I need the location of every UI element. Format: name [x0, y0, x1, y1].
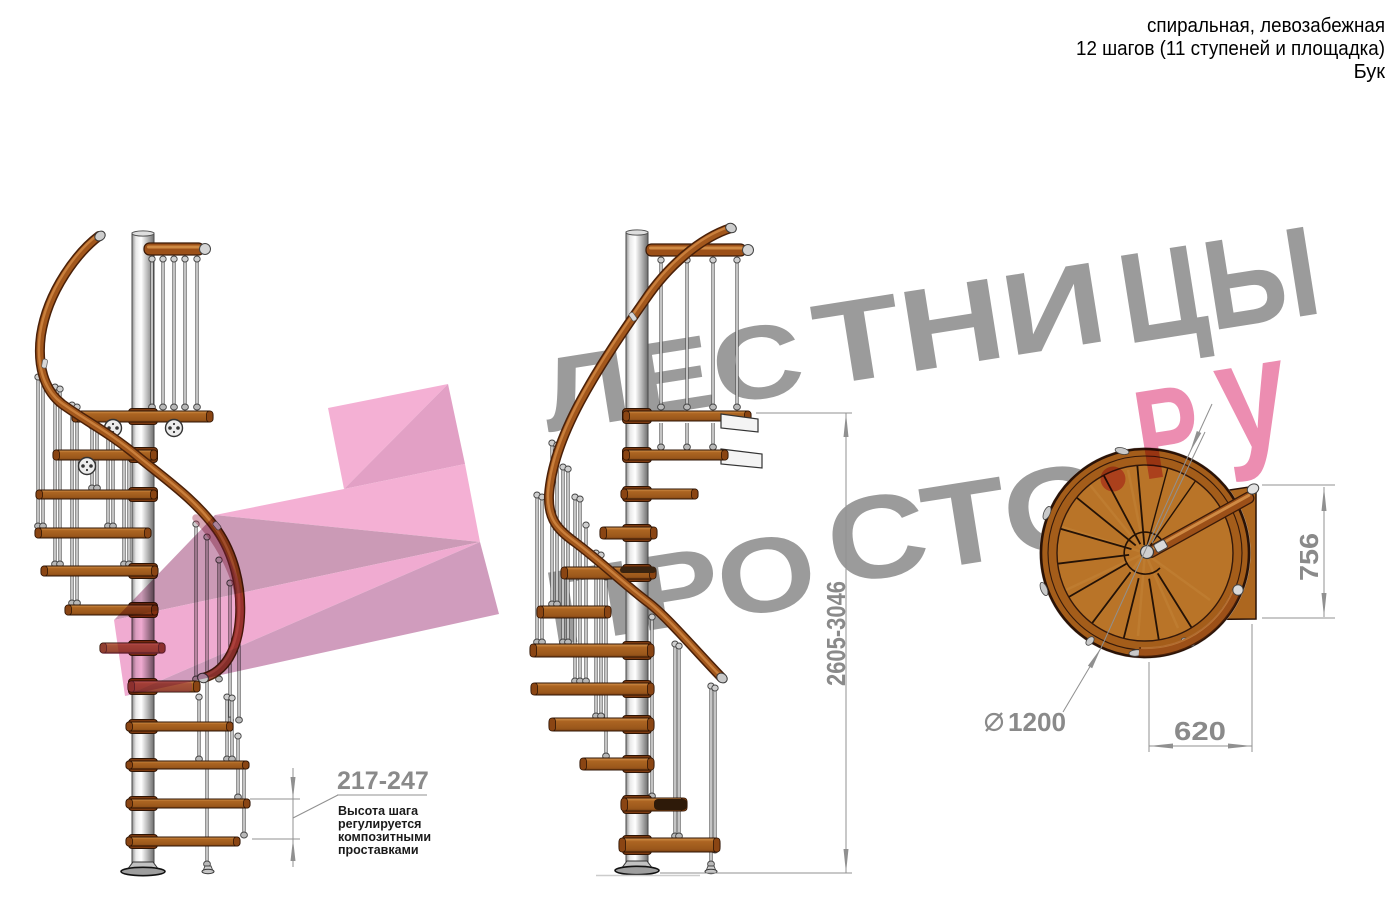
svg-text:регулируется: регулируется	[338, 817, 421, 831]
svg-text:12 шагов (11 ступеней и площад: 12 шагов (11 ступеней и площадка)	[1076, 38, 1385, 60]
svg-text:756: 756	[1294, 533, 1324, 581]
svg-text:Высота шага: Высота шага	[338, 804, 419, 818]
svg-text:композитными: композитными	[338, 830, 431, 844]
svg-text:Бук: Бук	[1354, 61, 1386, 83]
svg-text:2605-3046: 2605-3046	[821, 581, 851, 686]
svg-text:спиральная, левозабежная: спиральная, левозабежная	[1147, 15, 1385, 37]
svg-text:620: 620	[1174, 716, 1226, 746]
svg-text:1200: 1200	[1008, 707, 1066, 737]
svg-text:217-247: 217-247	[337, 767, 429, 795]
svg-text:проставками: проставками	[338, 843, 419, 857]
